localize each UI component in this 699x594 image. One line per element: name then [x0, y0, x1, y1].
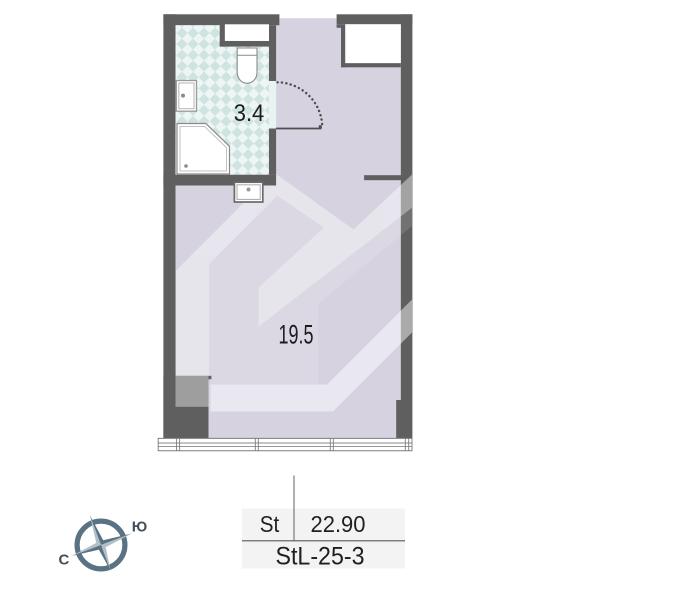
- svg-text:19.5: 19.5: [279, 320, 314, 350]
- svg-text:22.90: 22.90: [311, 511, 366, 537]
- svg-text:3.4: 3.4: [234, 100, 265, 127]
- svg-text:St: St: [260, 511, 280, 537]
- svg-text:StL-25-3: StL-25-3: [276, 543, 365, 571]
- svg-text:С: С: [59, 551, 70, 568]
- svg-text:Ю: Ю: [132, 519, 147, 536]
